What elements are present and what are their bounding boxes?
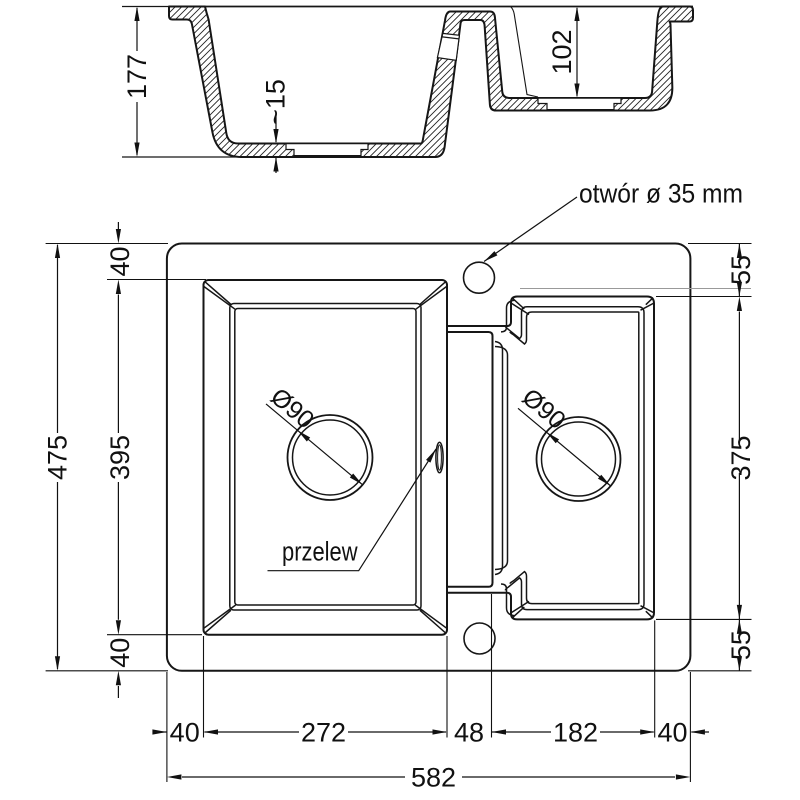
svg-text:102: 102 bbox=[547, 29, 577, 74]
svg-text:475: 475 bbox=[43, 435, 73, 480]
svg-text:otwór ø 35 mm: otwór ø 35 mm bbox=[579, 179, 743, 209]
svg-text:40: 40 bbox=[105, 638, 135, 668]
svg-text:40: 40 bbox=[170, 718, 200, 748]
svg-text:55: 55 bbox=[726, 630, 756, 660]
svg-text:177: 177 bbox=[122, 54, 152, 99]
svg-text:375: 375 bbox=[726, 435, 756, 480]
svg-text:40: 40 bbox=[105, 246, 135, 276]
svg-text:582: 582 bbox=[411, 763, 456, 793]
svg-text:395: 395 bbox=[105, 435, 135, 480]
svg-text:48: 48 bbox=[454, 718, 484, 748]
svg-text:55: 55 bbox=[726, 255, 756, 285]
svg-text:przelew: przelew bbox=[282, 537, 358, 567]
svg-text:182: 182 bbox=[553, 718, 598, 748]
svg-text:272: 272 bbox=[301, 718, 346, 748]
svg-text:~15: ~15 bbox=[261, 79, 291, 125]
svg-text:40: 40 bbox=[657, 718, 687, 748]
